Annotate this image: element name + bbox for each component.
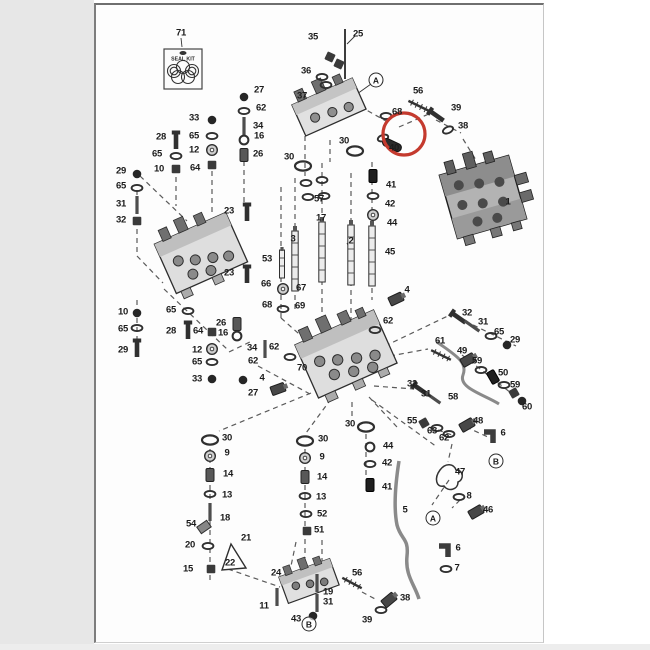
part-glyph-plug-dk [486, 369, 499, 384]
part-glyph-ball [239, 376, 248, 385]
valve-assembly-1 [435, 139, 540, 248]
part-glyph-bolt [172, 131, 180, 150]
part-glyph-oring-sm [207, 133, 218, 139]
part-glyph-nut [133, 217, 142, 226]
part-glyph-ball [133, 170, 142, 179]
part-glyph-spool [292, 226, 298, 291]
part-glyph-ring [366, 443, 375, 452]
part-glyph-oring-sm [319, 193, 330, 199]
part-glyph-plug-dk [366, 479, 374, 492]
part-glyph-oring-sm [301, 511, 312, 517]
part-glyph-washer [278, 284, 289, 295]
part-glyph-oring-sm [317, 74, 328, 80]
part-glyph-oring-sm [442, 125, 454, 135]
part-glyph-rod [208, 503, 211, 521]
parts-diagram-page: 7135253637566839384030301276233341665122… [0, 0, 650, 650]
part-glyph-bolt [243, 203, 251, 222]
part-glyph-oring-sm [441, 566, 452, 572]
part-glyph-washer [207, 145, 218, 156]
part-glyph-rod [242, 117, 245, 135]
red-highlight-circle-40 [383, 113, 425, 155]
part-glyph-ball [240, 93, 249, 102]
part-glyph-nut [418, 417, 430, 429]
part-glyph-oring-sm [301, 180, 312, 186]
part-glyph-bolt [243, 265, 251, 284]
part-glyph-ball [503, 341, 512, 350]
part-glyph-oring-sm [376, 607, 387, 613]
part-glyph-washer [205, 451, 216, 462]
part-glyph-oring-sm [285, 354, 296, 360]
part-glyph-spool [348, 220, 354, 285]
part-glyph-rod [464, 320, 481, 333]
part-glyph-oring-sm [317, 177, 328, 183]
part-glyph-nut [324, 51, 335, 62]
seal-kit-text: SEAL KIT [171, 56, 195, 62]
part-glyph-ball [309, 612, 318, 621]
part-glyph-bolt [448, 309, 468, 326]
part-glyph-ball [133, 309, 142, 318]
diagram-linework [0, 0, 650, 650]
part-glyph-oring-sm [183, 308, 194, 314]
part-glyph-oring-sm [303, 194, 314, 200]
valve-block-bottom [275, 549, 339, 603]
part-glyph-fitting [270, 381, 289, 395]
part-glyph-nut [208, 161, 217, 170]
part-glyph-bolt [133, 339, 141, 358]
part-glyph-plug [301, 471, 309, 484]
part-glyph-ring [240, 136, 249, 145]
part-glyph-nut [303, 527, 312, 536]
part-glyph-elbow [484, 432, 493, 443]
part-glyph-ring [233, 332, 242, 341]
part-glyph-rod [275, 588, 278, 606]
part-glyph-plug [240, 149, 248, 162]
part-glyph-fitting [381, 590, 400, 608]
part-glyph-fitting [459, 416, 478, 432]
part-glyph-pin [344, 29, 346, 79]
part-glyph-oring-sm [203, 543, 214, 549]
part-glyph-spool [319, 217, 325, 282]
part-glyph-ball [208, 116, 217, 125]
part-glyph-fitting [468, 503, 487, 519]
part-glyph-fitting [388, 291, 407, 306]
part-glyph-spool-sm [280, 247, 285, 278]
part-glyph-plug-dk [369, 170, 377, 183]
valve-block-center [289, 296, 401, 405]
part-glyph-tri [222, 544, 246, 570]
part-glyph-bolt [184, 321, 192, 340]
part-glyph-washer [207, 344, 218, 355]
part-glyph-washer [368, 210, 379, 221]
part-glyph-nut [508, 387, 520, 399]
part-glyph-oring [297, 436, 313, 445]
part-glyph-cap [197, 520, 211, 533]
part-glyph-rod [315, 594, 318, 612]
part-glyph-rod [263, 340, 266, 358]
part-glyph-oring [202, 435, 218, 444]
part-glyph-oring-sm [239, 108, 250, 114]
part-glyph-rod [315, 574, 318, 592]
part-glyph-ball [208, 375, 217, 384]
part-glyph-nut [207, 565, 216, 574]
part-glyph-spool [369, 221, 375, 286]
part-glyph-nut [333, 58, 344, 69]
part-glyph-oring-sm [476, 367, 487, 373]
part-glyph-fitting [460, 351, 479, 367]
part-glyph-elbow [439, 546, 448, 557]
part-glyph-oring-sm [207, 359, 218, 365]
part-glyph-bolt [426, 107, 446, 124]
part-glyph-washer [300, 453, 311, 464]
part-glyph-oring-sm [486, 333, 497, 339]
part-glyph-oring-sm [132, 185, 143, 191]
pipe-5 [395, 461, 419, 599]
part-glyph-oring-sm [278, 306, 289, 312]
part-glyph-oring-sm [368, 193, 379, 199]
part-glyph-oring-sm [454, 494, 465, 500]
valve-block-left [149, 200, 251, 301]
part-glyph-rod [135, 196, 138, 214]
part-glyph-nut [208, 328, 217, 337]
part-glyph-nut [172, 165, 181, 174]
part-glyph-ball [518, 397, 527, 406]
part-glyph-oring [358, 422, 374, 431]
part-glyph-oring [347, 146, 363, 155]
part-glyph-oring [295, 161, 311, 170]
valve-block-top [287, 66, 366, 136]
part-glyph-oring-sm [171, 153, 182, 159]
threaded-rod-56-bottom [341, 575, 363, 591]
seal-kit-box [164, 49, 202, 89]
part-glyph-rod [425, 392, 442, 405]
bracket-47 [437, 465, 463, 490]
part-glyph-plug [206, 469, 214, 482]
part-glyph-plug [233, 318, 241, 331]
